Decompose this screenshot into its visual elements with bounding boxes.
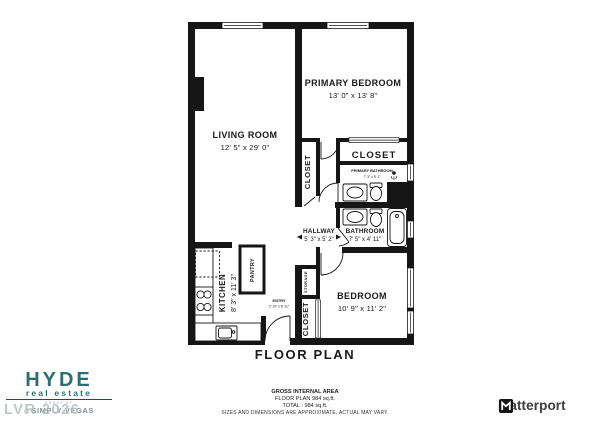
area-summary: GROSS INTERNAL AREA FLOOR PLAN 984 sq.ft… (150, 389, 460, 417)
wall-protrusion (188, 77, 204, 111)
hyde-logo-sub: real estate (6, 389, 112, 400)
primary-bath-sink-icon (343, 184, 367, 201)
kitchen-sink-icon (216, 326, 237, 340)
primary-bedroom-dims: 13' 0" x 13' 8" (329, 91, 378, 100)
bathroom-dims: 7' 5" x 4' 11" (349, 237, 381, 243)
primary-closet-label: CLOSET (352, 150, 397, 161)
stove-icon (195, 287, 213, 315)
entry-label: ENTRY (272, 298, 285, 303)
kitchen-dims: 8' 3" x 11' 3" (231, 274, 238, 312)
bedroom-dims: 10' 9" x 11' 2" (338, 304, 386, 313)
bedroom-closet-label: CLOSET (301, 302, 310, 336)
plan-title: FLOOR PLAN (255, 347, 356, 362)
matterport-logo: Matterport (498, 398, 566, 413)
primary-bath-toilet-icon (370, 183, 382, 201)
hallway-dims: 5' 3" x 5' 2" (304, 237, 334, 243)
bathroom-label: BATHROOM (346, 228, 385, 235)
living-room-dims: 12' 5" x 29' 0" (221, 143, 270, 152)
hallway-label: HALLWAY (303, 228, 336, 235)
bathroom-toilet-icon (370, 209, 382, 227)
shower-pan (387, 182, 407, 202)
entry-door-opening (265, 338, 290, 346)
matterport-icon (498, 398, 514, 414)
pantry-label: PANTRY (250, 258, 256, 282)
primary-bathroom-label: PRIMARY BATHROOM (351, 168, 392, 173)
primary-bedroom-label: PRIMARY BEDROOM (305, 78, 402, 88)
disclaimer: SIZES AND DIMENSIONS ARE APPROXIMATE, AC… (150, 409, 460, 417)
bedroom-label: BEDROOM (337, 291, 387, 301)
hall-closet-door (304, 197, 315, 206)
floor-plan-drawing: LIVING ROOM 12' 5" x 29' 0" PRIMARY BEDR… (0, 0, 600, 424)
living-room-label: LIVING ROOM (213, 130, 278, 140)
primary-bathroom-dims: 7' 3" x 5' 1" (364, 175, 382, 179)
floor-plan-page: LIVING ROOM 12' 5" x 29' 0" PRIMARY BEDR… (0, 0, 600, 424)
hyde-logo-name: HYDE (6, 372, 112, 389)
bathtub-icon (388, 209, 407, 247)
entry-dims: 2' 10" x 8' 11" (269, 305, 290, 309)
hyde-logo: HYDE real estate GROUP AT ⌂SIMPLY VEGAS … (6, 372, 112, 415)
gross-area-heading: GROSS INTERNAL AREA (150, 389, 460, 396)
bathroom-sink-icon (343, 209, 367, 225)
hall-closet-label: CLOSET (303, 155, 312, 189)
storage-label: STORAGE (303, 271, 308, 293)
kitchen-label: KITCHEN (218, 274, 227, 312)
lvr-watermark: LVR 2026 (4, 402, 80, 418)
